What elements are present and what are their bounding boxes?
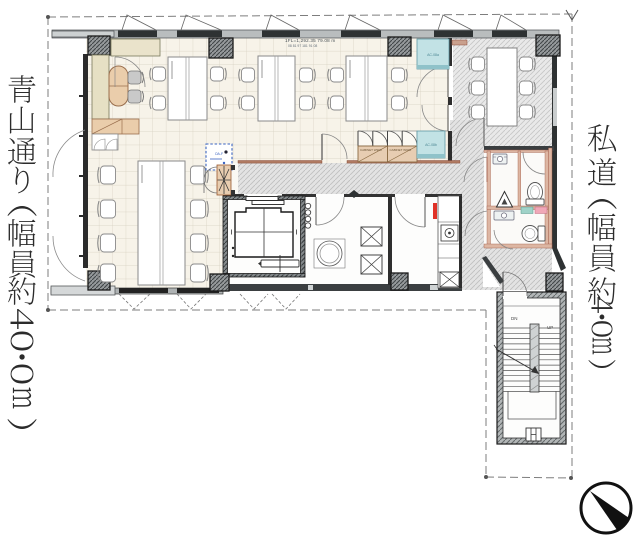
svg-text:UP: UP xyxy=(547,325,553,330)
svg-text:1FL=1,292.35 79.08 m: 1FL=1,292.35 79.08 m xyxy=(285,38,335,43)
svg-text:DN: DN xyxy=(511,316,518,321)
svg-text:CABINET W900: CABINET W900 xyxy=(360,148,382,152)
svg-text:AC-08a: AC-08a xyxy=(427,53,439,57)
svg-text:08 81 97 181 91 08: 08 81 97 181 91 08 xyxy=(288,44,317,48)
svg-text:OA-F: OA-F xyxy=(215,152,223,156)
svg-text:AC-08b: AC-08b xyxy=(425,143,437,147)
svg-text:CABINET W900: CABINET W900 xyxy=(390,148,412,152)
